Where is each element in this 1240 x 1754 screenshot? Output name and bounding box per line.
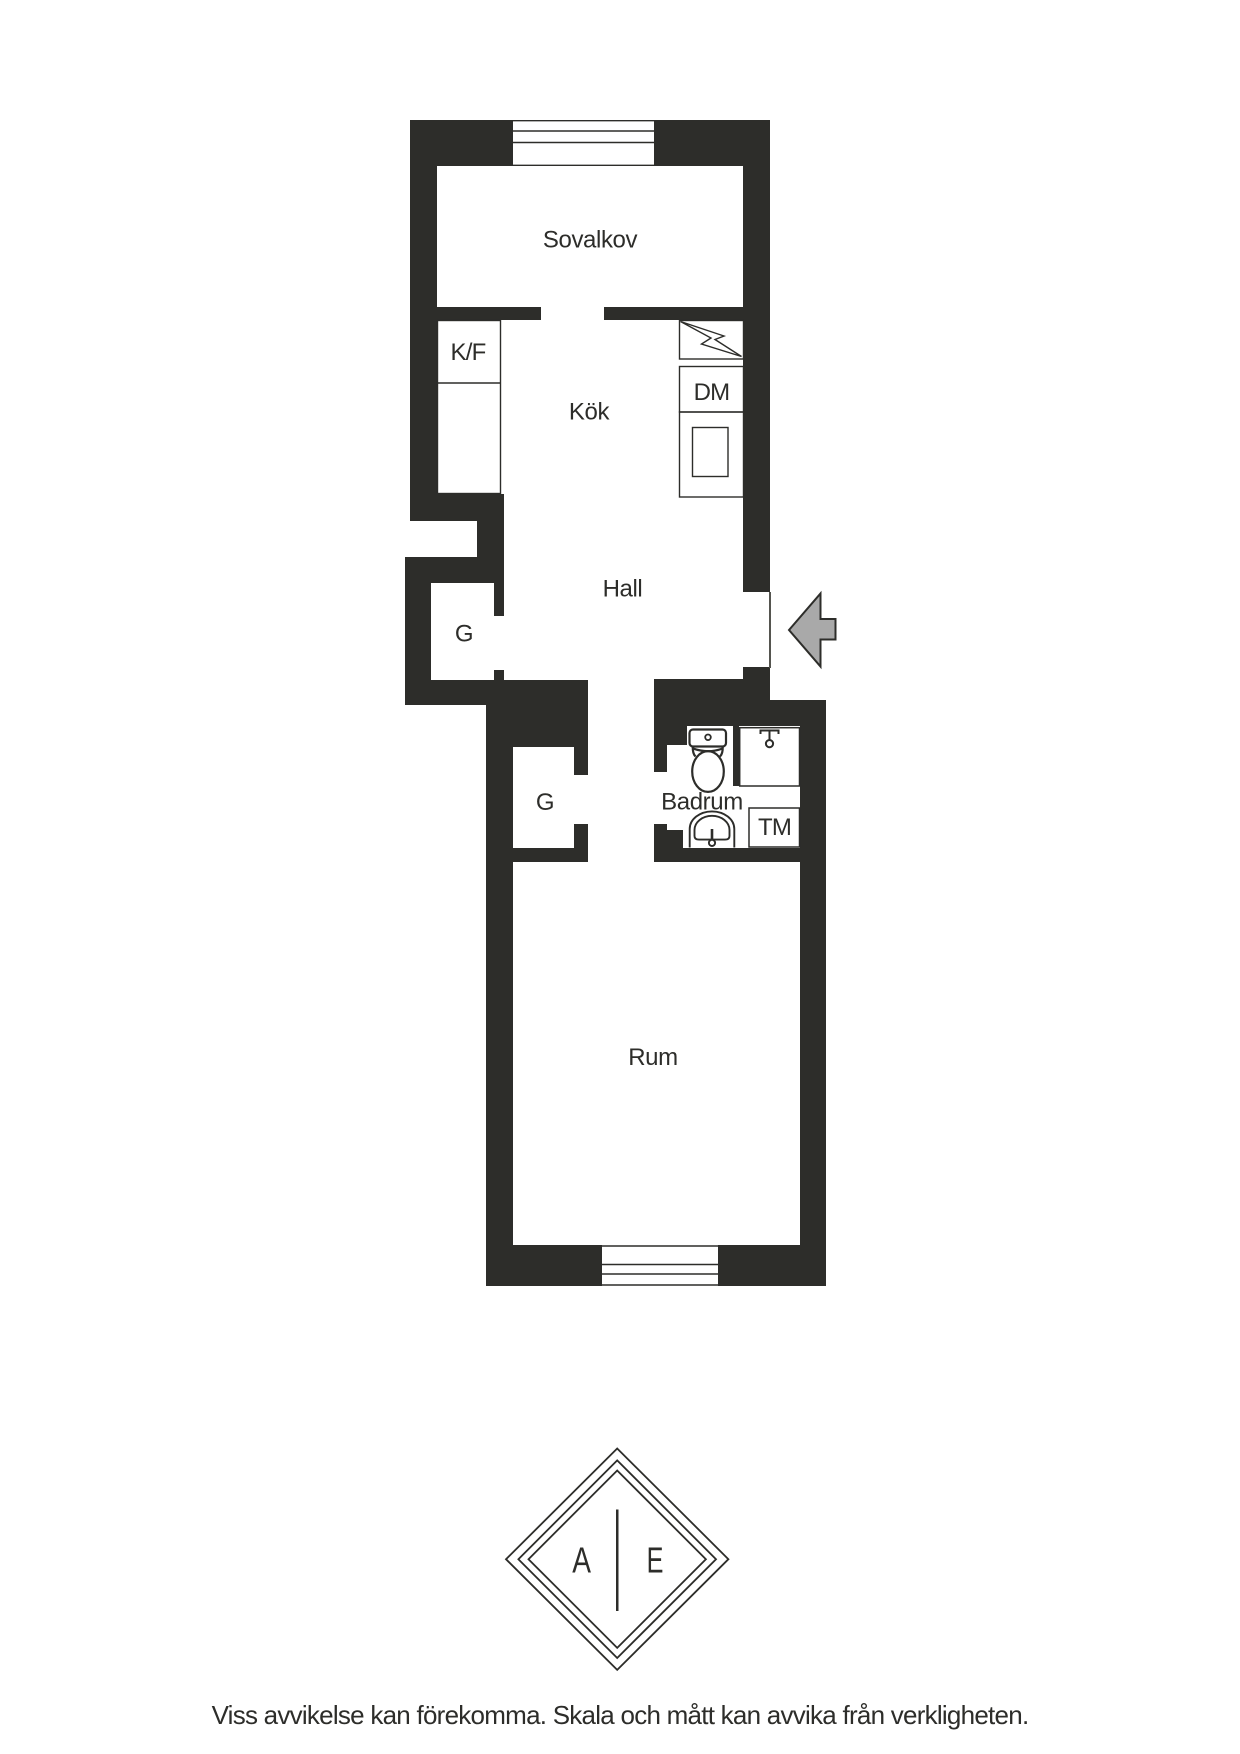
- svg-text:A: A: [572, 1540, 591, 1580]
- svg-text:G: G: [536, 789, 554, 816]
- svg-text:TM: TM: [758, 814, 791, 841]
- svg-text:Kök: Kök: [569, 399, 611, 426]
- svg-text:Viss avvikelse kan förekomma.: Viss avvikelse kan förekomma. Skala och …: [212, 1700, 1029, 1730]
- svg-text:Rum: Rum: [628, 1044, 677, 1071]
- svg-text:G: G: [455, 621, 473, 648]
- svg-text:E: E: [647, 1540, 664, 1581]
- svg-text:DM: DM: [694, 379, 730, 406]
- svg-text:Hall: Hall: [603, 576, 643, 603]
- svg-text:K/F: K/F: [451, 339, 486, 366]
- svg-text:Sovalkov: Sovalkov: [543, 226, 638, 253]
- svg-text:Badrum: Badrum: [661, 789, 743, 816]
